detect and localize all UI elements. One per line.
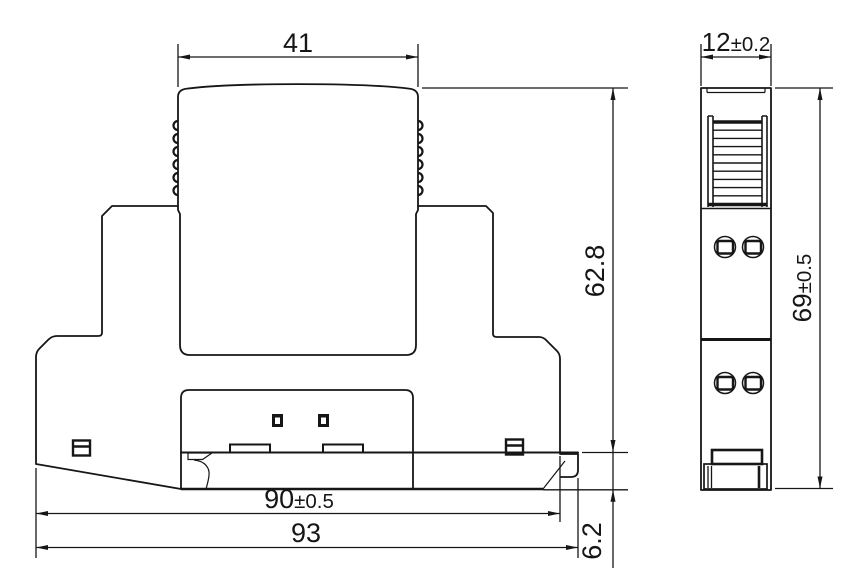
indicator-slot-right <box>318 414 329 427</box>
front-view <box>36 84 578 489</box>
dim-top-width: 41 <box>178 28 418 87</box>
dim-top-width-label: 41 <box>283 28 313 58</box>
dim-overall-width-label: 93 <box>291 518 321 548</box>
terminal-screw-top-left <box>715 237 736 258</box>
latch-box <box>704 464 767 489</box>
mounting-foot <box>560 454 578 477</box>
drawing-canvas: 41 62.8 6.2 90±0.5 93 12±0.2 69±0.5 <box>0 0 864 581</box>
latch-tab <box>712 450 762 464</box>
indicator-slot-left <box>272 414 283 427</box>
base-left-wing-outline <box>36 206 181 489</box>
base-right-chamfer <box>543 461 565 489</box>
terminal-screw-top-right <box>743 237 764 258</box>
dim-side-height-label: 69±0.5 <box>787 254 817 323</box>
rail-clip-hook-left <box>188 453 212 460</box>
dim-body-height-label: 62.8 <box>580 245 610 298</box>
latch-box-inner-lines <box>708 466 712 488</box>
clamp-symbol-left <box>73 441 90 456</box>
rail-clip-spring-left <box>194 460 209 489</box>
rail-latch-tab-right <box>323 445 363 453</box>
terminal-screw-bottom-left <box>715 373 736 394</box>
dim-foot-height: 6.2 <box>577 490 616 560</box>
vent-rib-lines <box>713 130 762 196</box>
dimension-drawing: 41 62.8 6.2 90±0.5 93 12±0.2 69±0.5 <box>0 0 864 581</box>
dim-side-width-label: 12±0.2 <box>702 27 771 57</box>
dim-foot-height-label: 6.2 <box>577 522 607 560</box>
base-right-wing-outline <box>418 206 560 453</box>
terminal-block-outline <box>181 390 413 489</box>
rail-latch-tab-left <box>230 445 270 453</box>
vent-rib-panel <box>701 116 771 209</box>
dim-side-width: 12±0.2 <box>701 27 771 86</box>
dim-side-height: 69±0.5 <box>775 88 833 489</box>
terminal-screw-bottom-right <box>743 373 764 394</box>
side-view <box>701 88 771 490</box>
side-body-outline <box>701 88 771 490</box>
upper-housing-outline <box>178 84 418 355</box>
dim-body-height: 62.8 <box>422 88 628 568</box>
